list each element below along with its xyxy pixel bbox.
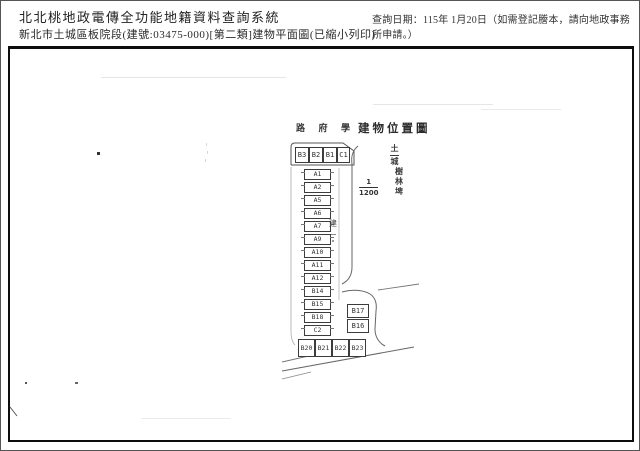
unit-box: A5 xyxy=(304,195,331,206)
unit-box: B1 xyxy=(323,147,337,163)
unit-box: A10 xyxy=(304,247,331,258)
place-char: 樹 xyxy=(395,167,403,177)
side-annotation: 建 xyxy=(328,218,338,242)
scan-speck xyxy=(97,152,100,155)
unit-box: B21 xyxy=(315,339,332,357)
unit-box: B20 xyxy=(298,339,315,357)
unit-box: A7 xyxy=(304,221,331,232)
scan-speck xyxy=(207,151,208,154)
scale-denominator: 1200 xyxy=(359,189,378,197)
unit-box: A1 xyxy=(304,169,331,180)
unit-box: A9 xyxy=(304,234,331,245)
scan-noise xyxy=(481,109,561,110)
place-name-label: 樹 林 埤 xyxy=(395,167,403,197)
unit-box: B17 xyxy=(347,304,369,318)
scan-noise xyxy=(101,77,286,78)
unit-box: B18 xyxy=(304,312,331,323)
side-annotation-mark xyxy=(331,234,336,235)
location-map-title: 建物位置圖 xyxy=(358,120,431,136)
scan-speck xyxy=(75,382,78,384)
query-date-note: 查詢日期：115年 1月20日（如需登記謄本，請向地政事務所申請。） xyxy=(372,11,639,41)
unit-box: A12 xyxy=(304,273,331,284)
district-label: 土 城 xyxy=(390,144,399,167)
street-char: 學 xyxy=(341,121,350,134)
unit-box: C1 xyxy=(337,147,350,163)
unit-box: C2 xyxy=(304,325,331,336)
map-scale: 1 1200 xyxy=(359,178,378,197)
place-char: 埤 xyxy=(395,187,403,197)
unit-box: B16 xyxy=(347,319,369,333)
unit-box: B22 xyxy=(332,339,349,357)
unit-box: B3 xyxy=(295,147,309,163)
unit-box: B14 xyxy=(304,286,331,297)
street-char: 路 xyxy=(296,121,305,134)
document-subtitle: 新北市土城區板院段(建號:03475-000)[第二類]建物平面圖(已縮小列印) xyxy=(19,26,376,42)
street-char: 府 xyxy=(318,121,327,134)
unit-box: A11 xyxy=(304,260,331,271)
unit-box: A2 xyxy=(304,182,331,193)
district-underline xyxy=(390,155,399,156)
place-char: 林 xyxy=(395,177,403,187)
district-char: 土 xyxy=(391,144,399,154)
scan-speck xyxy=(206,143,207,146)
scale-fraction-bar xyxy=(359,187,378,188)
scan-noise xyxy=(373,104,493,105)
street-name-label: 路 府 學 xyxy=(296,121,350,134)
system-title: 北北桃地政電傳全功能地籍資料查詢系統 xyxy=(19,7,280,26)
unit-box: B23 xyxy=(349,339,366,357)
side-annotation-char: 建 xyxy=(329,218,337,229)
scan-noise xyxy=(141,418,231,419)
scanned-query-result-page: 北北桃地政電傳全功能地籍資料查詢系統 新北市土城區板院段(建號:03475-00… xyxy=(0,0,640,451)
scan-speck xyxy=(205,159,206,162)
unit-box: A6 xyxy=(304,208,331,219)
district-char: 城 xyxy=(391,157,399,167)
scale-numerator: 1 xyxy=(366,178,371,186)
unit-box: B15 xyxy=(304,299,331,310)
unit-box: B2 xyxy=(309,147,323,163)
side-annotation-mark xyxy=(332,240,334,242)
scan-speck xyxy=(25,382,27,384)
